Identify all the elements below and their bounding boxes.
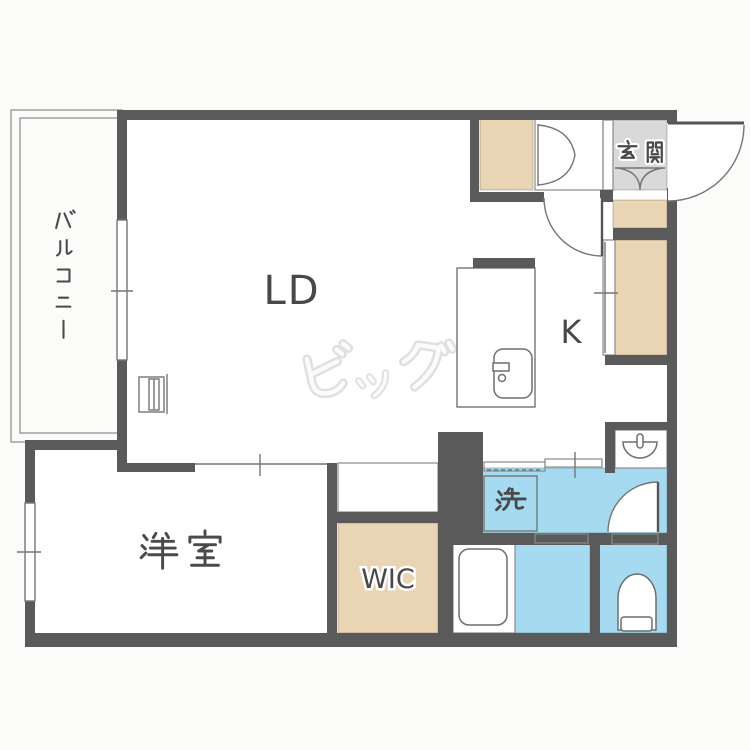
label-balcony [56, 210, 75, 337]
label-k: K [561, 313, 583, 351]
closet-top [480, 118, 533, 190]
door-entrance [668, 123, 744, 201]
bathtub [459, 549, 507, 625]
storage-upper [613, 200, 667, 228]
storage-lower [615, 240, 667, 355]
heater-unit [139, 374, 167, 414]
toilet [618, 574, 656, 631]
label-ld: LD [263, 268, 320, 314]
bath-unit [453, 543, 515, 633]
floorplan-drawing: LD K WIC [0, 0, 750, 750]
bathroom-floor [515, 543, 590, 633]
balcony-outline [11, 110, 122, 442]
floorplan-canvas: LD K WIC [0, 0, 750, 750]
faucet [493, 363, 509, 371]
kitchen-sink [494, 349, 532, 398]
label-wic: WIC [361, 564, 415, 595]
